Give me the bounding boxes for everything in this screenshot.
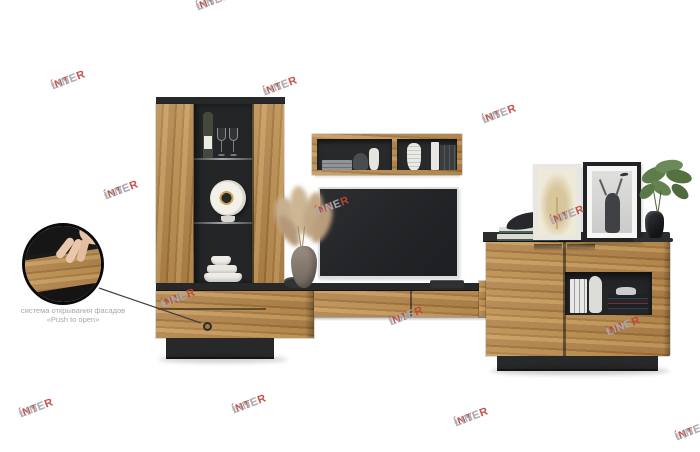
floor-shadow [158, 356, 288, 363]
bench-drawers [314, 291, 496, 317]
niche-books-stack [608, 294, 648, 313]
plant [630, 155, 700, 245]
niche-decor-top [616, 287, 636, 295]
watermark-registered-mark: ® [195, 1, 204, 13]
wall-shelf-shadow [315, 175, 460, 179]
shelf-books-flat [322, 160, 352, 170]
niche-figurine [589, 276, 602, 313]
watermark-registered-mark: ® [481, 114, 490, 126]
floor-shadow [490, 367, 670, 375]
bench-shadow [314, 317, 496, 321]
glass-shelf [194, 222, 252, 224]
picture-frame-light [533, 164, 581, 240]
watermark-text-red: ÍNTER [18, 397, 55, 420]
door-handle-groove [534, 244, 562, 251]
caption-line2: «Push to open» [6, 316, 140, 325]
product-photo-scene: система открывания фасадов «Push to open… [0, 0, 700, 452]
watermark-text-red: ÍNTER [481, 103, 518, 126]
watermark-registered-mark: ® [674, 431, 683, 443]
watermark-text-red: ÍNTER [50, 69, 87, 92]
glass-shelf [194, 158, 252, 160]
shelf-small-vase [369, 148, 379, 170]
wine-glass [217, 128, 226, 158]
display-donut-vase [210, 180, 246, 223]
watermark-text-red: ÍNTER [453, 406, 490, 429]
bottle-label [204, 136, 212, 149]
display-bottle [203, 112, 213, 158]
push-to-open-caption: система открывания фасадов «Push to open… [6, 307, 140, 324]
watermark-text-gray: LINE [481, 106, 510, 126]
watermark-registered-mark: ® [231, 404, 240, 416]
display-bowls [204, 256, 244, 283]
shelf-pattern-vase [407, 143, 421, 170]
cabinet-drawer-front [156, 291, 314, 338]
watermark-registered-mark: ® [50, 80, 59, 92]
wine-glass [229, 128, 238, 158]
watermark-text-gray: LINE [103, 182, 132, 202]
tall-cabinet-left-door [156, 104, 194, 283]
watermark-text-gray: LINE [18, 400, 47, 420]
niche-binders [570, 279, 587, 313]
watermark-text-gray: LINE [674, 423, 700, 443]
watermark-text-red: ÍNTER [103, 179, 140, 202]
push-to-open-inset [22, 223, 104, 305]
watermark-registered-mark: ® [18, 408, 27, 420]
watermark-text-gray: LINE [50, 72, 79, 92]
watermark-text-red: ÍNTER [674, 420, 700, 443]
drawer-seam [158, 308, 266, 310]
watermark-text-gray: LINE [231, 396, 260, 416]
hand [53, 223, 104, 266]
watermark-registered-mark: ® [453, 417, 462, 429]
push-to-open-dot [203, 322, 212, 331]
door-handle-groove [567, 244, 595, 251]
watermark-text-gray: LINE [453, 409, 482, 429]
media-console [430, 280, 464, 288]
watermark-text-gray: LINE [262, 78, 291, 98]
tall-cabinet-top [156, 97, 285, 104]
shelf-books-dark [440, 145, 456, 170]
shelf-book-white [431, 142, 439, 170]
bench-end-panel [479, 281, 486, 317]
bench-seam [410, 291, 412, 317]
watermark-text-red: ÍNTER [231, 393, 268, 416]
shelf-bowl [353, 153, 368, 170]
watermark-text-red: ÍNTER [262, 75, 299, 98]
watermark-registered-mark: ® [103, 190, 112, 202]
decor-tray [633, 238, 673, 242]
watermark-text-gray: LINE [195, 0, 224, 13]
watermark-text-red: ÍNTER [195, 0, 232, 13]
